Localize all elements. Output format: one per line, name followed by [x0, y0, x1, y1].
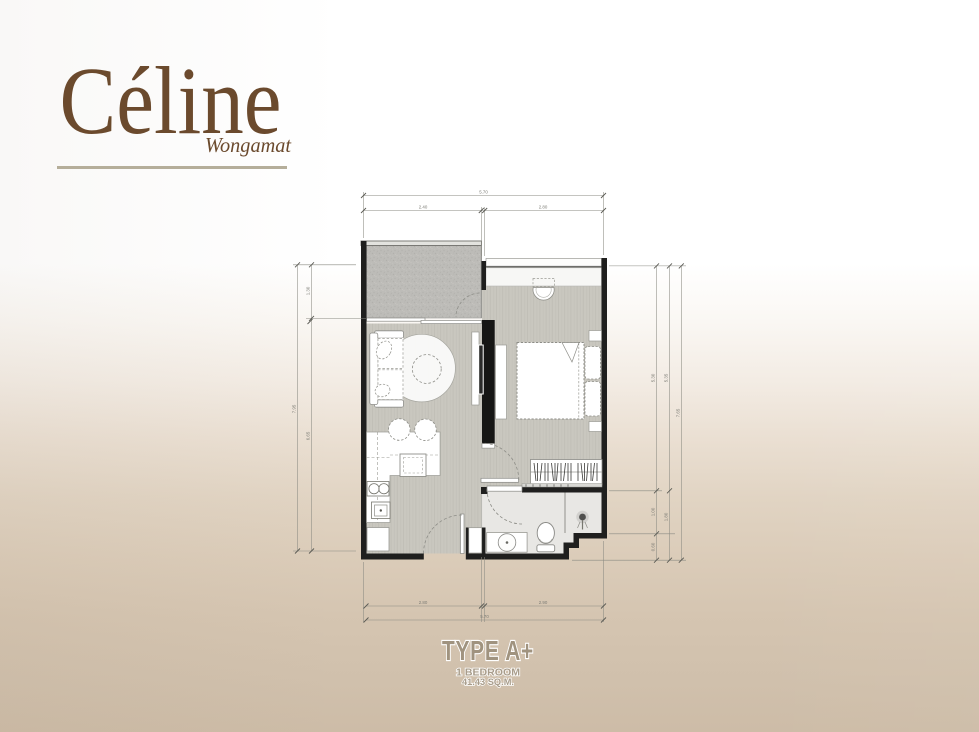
svg-text:6.65: 6.65 — [306, 431, 311, 440]
svg-text:TYPE A+: TYPE A+ — [442, 635, 534, 666]
svg-text:1.30: 1.30 — [306, 286, 311, 295]
svg-text:1.80: 1.80 — [664, 512, 669, 521]
svg-text:7.65: 7.65 — [676, 408, 681, 417]
svg-text:2.80: 2.80 — [539, 205, 548, 210]
svg-text:5.35: 5.35 — [664, 373, 669, 382]
svg-text:2.90: 2.90 — [539, 600, 548, 605]
svg-text:5.70: 5.70 — [479, 190, 488, 195]
svg-text:2.80: 2.80 — [419, 600, 428, 605]
svg-text:5.70: 5.70 — [480, 614, 489, 619]
svg-text:0.60: 0.60 — [651, 542, 656, 551]
svg-text:7.95: 7.95 — [292, 404, 297, 413]
svg-text:1.00: 1.00 — [651, 507, 656, 516]
svg-text:Wongamat: Wongamat — [205, 133, 292, 157]
svg-text:41.43 SQ.M.: 41.43 SQ.M. — [462, 677, 514, 688]
svg-text:5.30: 5.30 — [651, 373, 656, 382]
svg-text:2.40: 2.40 — [419, 205, 428, 210]
